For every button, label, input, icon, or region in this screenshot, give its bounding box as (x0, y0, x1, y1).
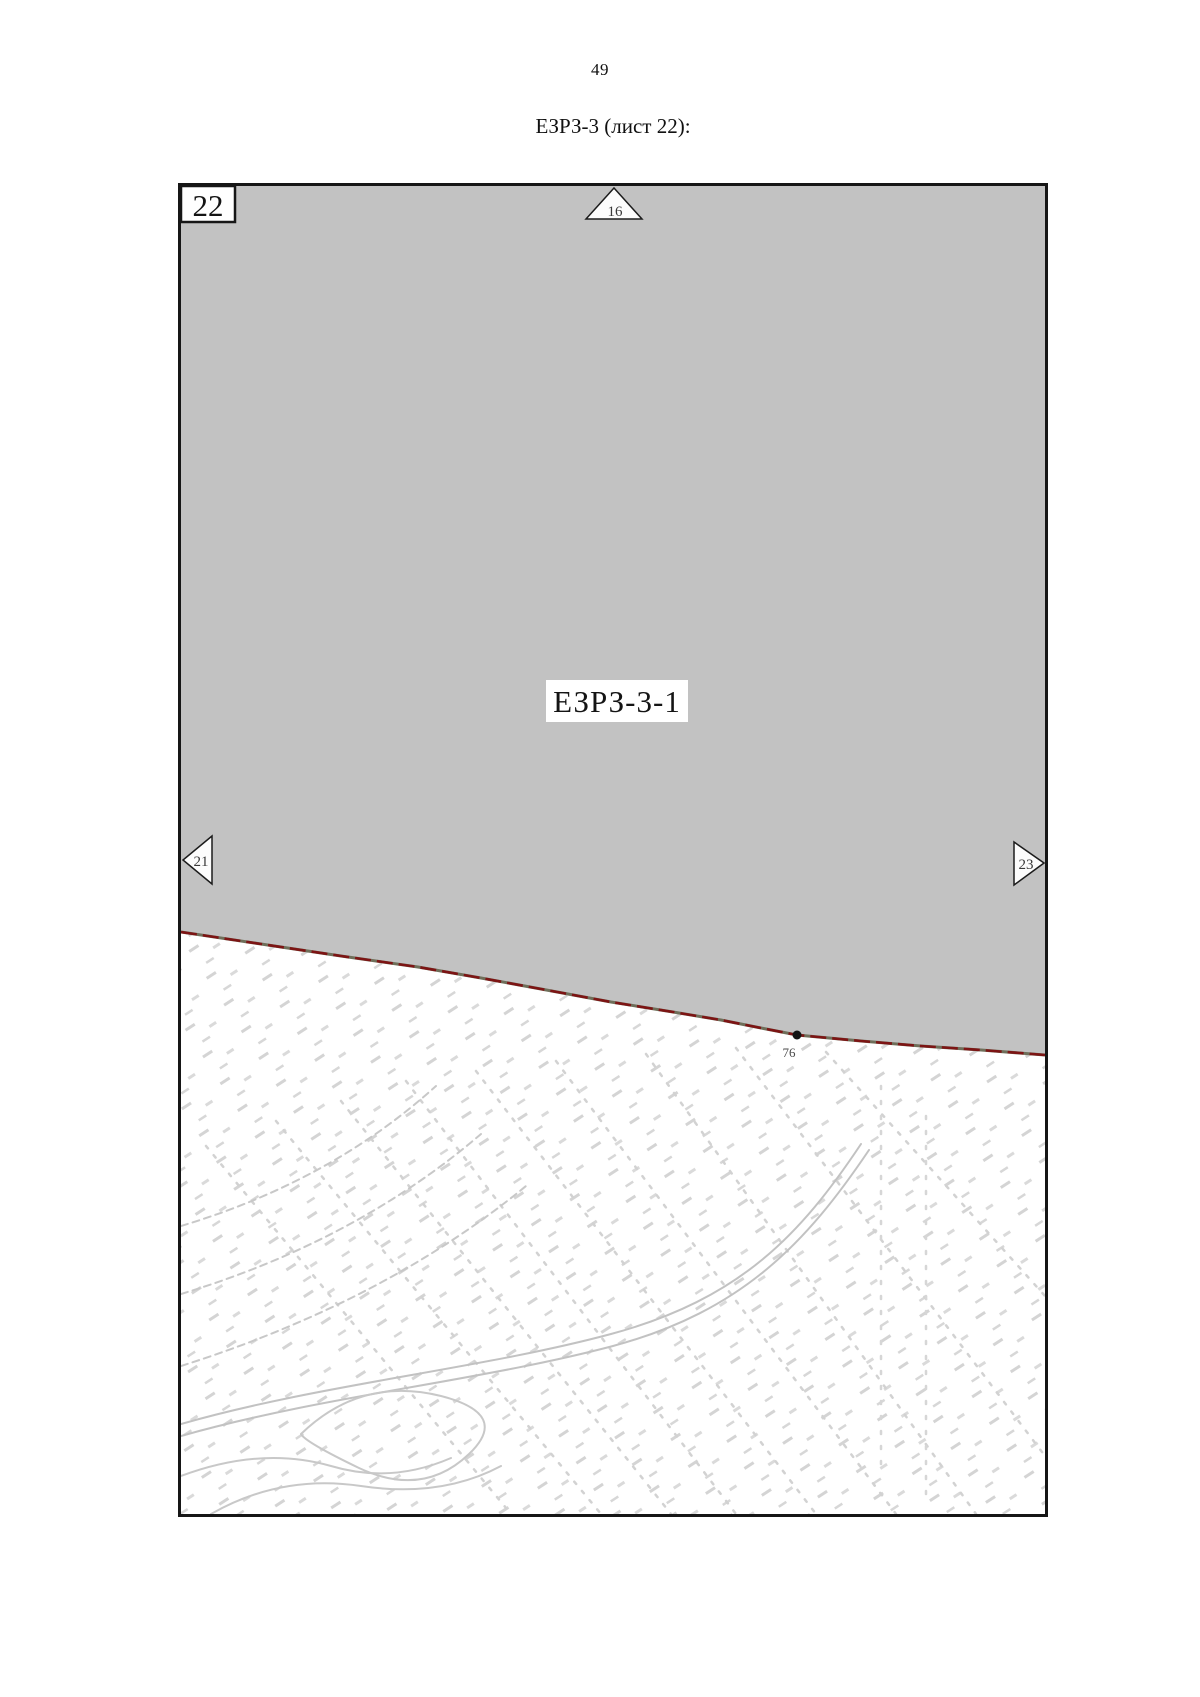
map-canvas: 76 ЕЗРЗ-3-1 22 16 21 23 (181, 186, 1045, 1514)
page-number: 49 (0, 60, 1200, 80)
adjacent-sheet-label-left: 21 (194, 854, 209, 870)
adjacent-sheet-label-right: 23 (1019, 857, 1034, 873)
map-sheet-frame: 76 ЕЗРЗ-3-1 22 16 21 23 (178, 183, 1048, 1517)
document-page: 49 ЕЗРЗ-3 (лист 22): (0, 0, 1200, 1697)
adjacent-sheet-label-top: 16 (608, 204, 624, 220)
zone-area-polygon (181, 186, 1045, 1055)
boundary-point-label: 76 (783, 1045, 797, 1060)
figure-title: ЕЗРЗ-3 (лист 22): (178, 114, 1048, 139)
zone-label: ЕЗРЗ-3-1 (553, 684, 681, 719)
boundary-point-marker (793, 1031, 802, 1040)
sheet-number-label: 22 (193, 188, 224, 223)
